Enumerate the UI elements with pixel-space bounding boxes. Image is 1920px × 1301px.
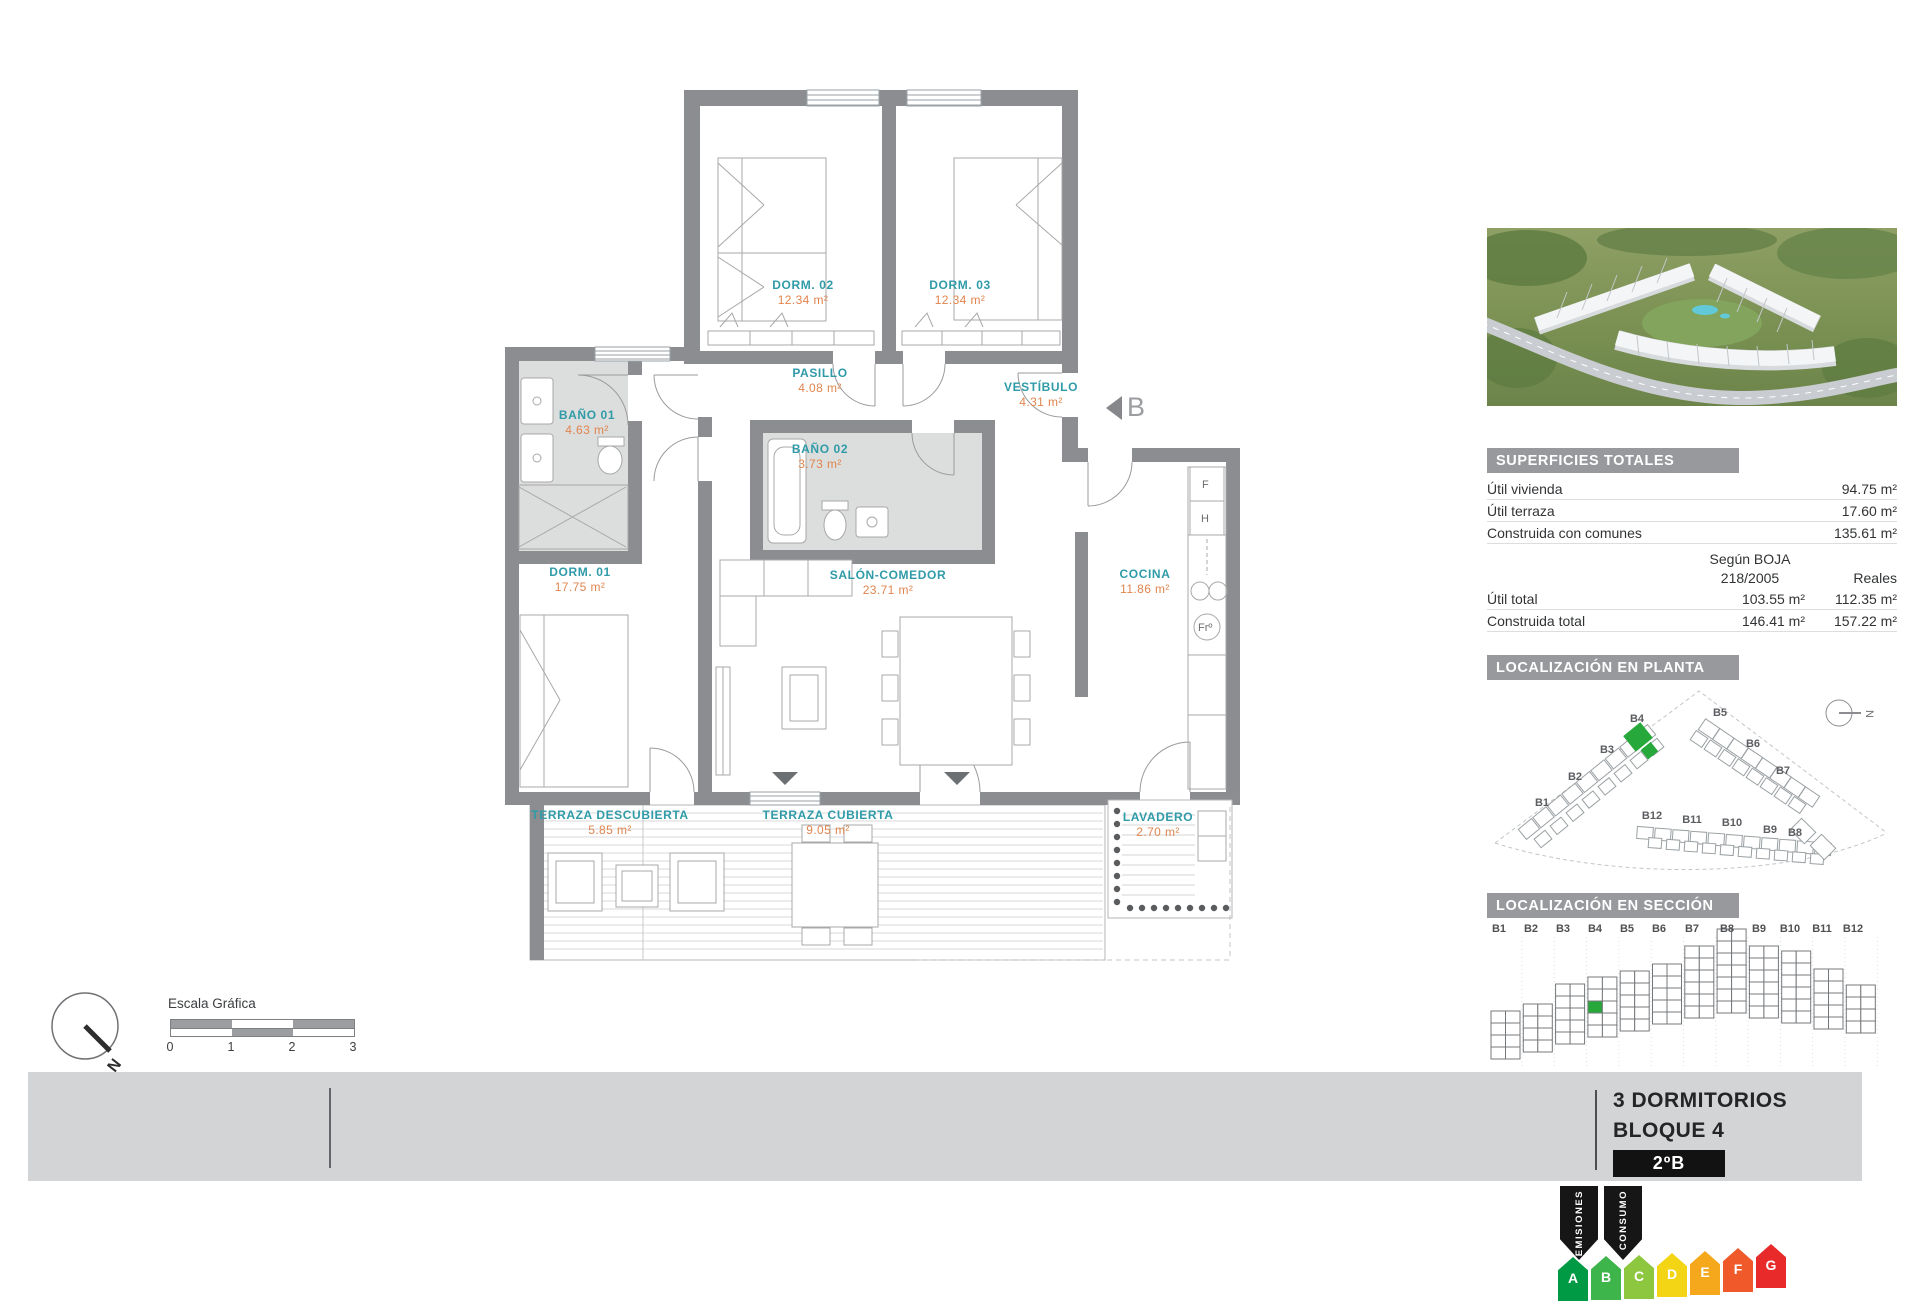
surface-value-boja: 146.41 m² [1695, 613, 1805, 629]
floor-plan-sheet: F H Frº DORM. 02 12.34 m² DORM. 03 12.34… [0, 0, 1920, 1280]
surface-total-row: Útil total 103.55 m² 112.35 m² [1487, 588, 1897, 610]
energy-tag: EMISIONES [1560, 1186, 1598, 1260]
seccion-column-label: B8 [1720, 923, 1734, 935]
threshold-arrows [602, 772, 970, 785]
seccion-column-label: B3 [1556, 923, 1570, 935]
seccion-column-label: B6 [1652, 923, 1666, 935]
planta-header: LOCALIZACIÓN EN PLANTA [1487, 655, 1739, 680]
seccion-column-label: B4 [1588, 923, 1602, 935]
energy-rating-arrow: A [1558, 1257, 1588, 1301]
superficies-table: Útil vivienda 94.75 m² Útil terraza 17.6… [1487, 478, 1897, 632]
unit-badge: 2ºB [1613, 1150, 1725, 1177]
scale-tick: 3 [350, 1040, 357, 1054]
surface-value-boja: 103.55 m² [1695, 591, 1805, 607]
north-arrow: N [30, 975, 170, 1085]
footer-band [28, 1072, 1862, 1181]
title-line2: BLOQUE 4 [1613, 1116, 1787, 1146]
surface-label: Construida con comunes [1487, 525, 1642, 541]
surface-value: 17.60 m² [1842, 503, 1897, 519]
fridge-label: F [1202, 479, 1209, 491]
seccion-column-label: B2 [1524, 923, 1538, 935]
seccion-column-label: B10 [1780, 923, 1800, 935]
energy-rating-arrow: D [1657, 1253, 1687, 1297]
title-divider [1595, 1090, 1597, 1170]
floor-plan-drawing: F H Frº [420, 55, 1250, 970]
block-label: B8 [1788, 827, 1802, 839]
surface-value-reales: 157.22 m² [1805, 613, 1897, 629]
aerial-photo [1487, 228, 1897, 406]
title-line1: 3 DORMITORIOS [1613, 1086, 1787, 1116]
title-block: 3 DORMITORIOS BLOQUE 4 2ºB [1613, 1086, 1787, 1177]
col-header-reales: Reales [1805, 569, 1897, 588]
seccion-diagram: B1B2B3B4B5B6B7B8B9B10B11B12 [1487, 921, 1897, 1071]
energy-rating-arrow: E [1690, 1251, 1720, 1295]
seccion-column-label: B5 [1620, 923, 1634, 935]
scale-tick: 0 [167, 1040, 174, 1054]
planta-diagram: N B1B2B3B4B5B6B7B8B9B10B11B12 [1487, 683, 1897, 888]
energy-rating-arrow: G [1756, 1244, 1786, 1288]
energy-rating-arrow: C [1624, 1255, 1654, 1299]
block-label: B4 [1630, 713, 1644, 725]
surface-col-headers: Según BOJA 218/2005 Reales [1487, 550, 1897, 588]
scale-tick: 2 [289, 1040, 296, 1054]
surface-label: Útil terraza [1487, 503, 1555, 519]
oven-label: H [1201, 513, 1209, 525]
seccion-column-label: B7 [1685, 923, 1699, 935]
surface-value: 135.61 m² [1834, 525, 1897, 541]
seccion-column-label: B11 [1812, 923, 1832, 935]
seccion-column-label: B1 [1492, 923, 1506, 935]
surface-label: Útil vivienda [1487, 481, 1562, 497]
scale-bar [170, 1019, 355, 1037]
svg-text:N: N [1863, 710, 1875, 718]
footer-divider [329, 1088, 331, 1168]
section-marker-icon [1106, 396, 1122, 420]
block-label: B3 [1600, 744, 1614, 756]
surface-total-row: Construida total 146.41 m² 157.22 m² [1487, 610, 1897, 632]
block-label: B5 [1713, 707, 1727, 719]
col-header-boja: Según BOJA 218/2005 [1695, 550, 1805, 588]
fridge2-label: Frº [1198, 622, 1212, 634]
block-label: B6 [1746, 738, 1760, 750]
section-marker: B [1106, 392, 1145, 423]
superficies-header: SUPERFICIES TOTALES [1487, 448, 1739, 473]
scale-tick: 1 [228, 1040, 235, 1054]
scale-title: Escala Gráfica [168, 996, 256, 1011]
block-label: B1 [1535, 797, 1549, 809]
lavadero-detail [1108, 800, 1232, 918]
surface-value-reales: 112.35 m² [1805, 591, 1897, 607]
surface-row: Útil vivienda 94.75 m² [1487, 478, 1897, 500]
block-label: B11 [1682, 814, 1702, 826]
block-label: B7 [1776, 765, 1790, 777]
energy-tag: CONSUMO [1604, 1186, 1642, 1260]
block-label: B2 [1568, 771, 1582, 783]
energy-rating-arrow: B [1591, 1256, 1621, 1300]
surface-label: Construida total [1487, 613, 1695, 629]
section-marker-letter: B [1127, 392, 1145, 423]
surface-label: Útil total [1487, 591, 1695, 607]
seccion-header: LOCALIZACIÓN EN SECCIÓN [1487, 893, 1739, 918]
block-label: B12 [1642, 810, 1662, 822]
seccion-column-label: B12 [1843, 923, 1863, 935]
block-label: B10 [1722, 817, 1742, 829]
seccion-column-label: B9 [1752, 923, 1766, 935]
floor-plan: F H Frº DORM. 02 12.34 m² DORM. 03 12.34… [420, 55, 1250, 970]
surface-value: 94.75 m² [1842, 481, 1897, 497]
block-label: B9 [1763, 824, 1777, 836]
surface-row: Útil terraza 17.60 m² [1487, 500, 1897, 522]
surface-row: Construida con comunes 135.61 m² [1487, 522, 1897, 544]
energy-rating-arrow: F [1723, 1248, 1753, 1292]
